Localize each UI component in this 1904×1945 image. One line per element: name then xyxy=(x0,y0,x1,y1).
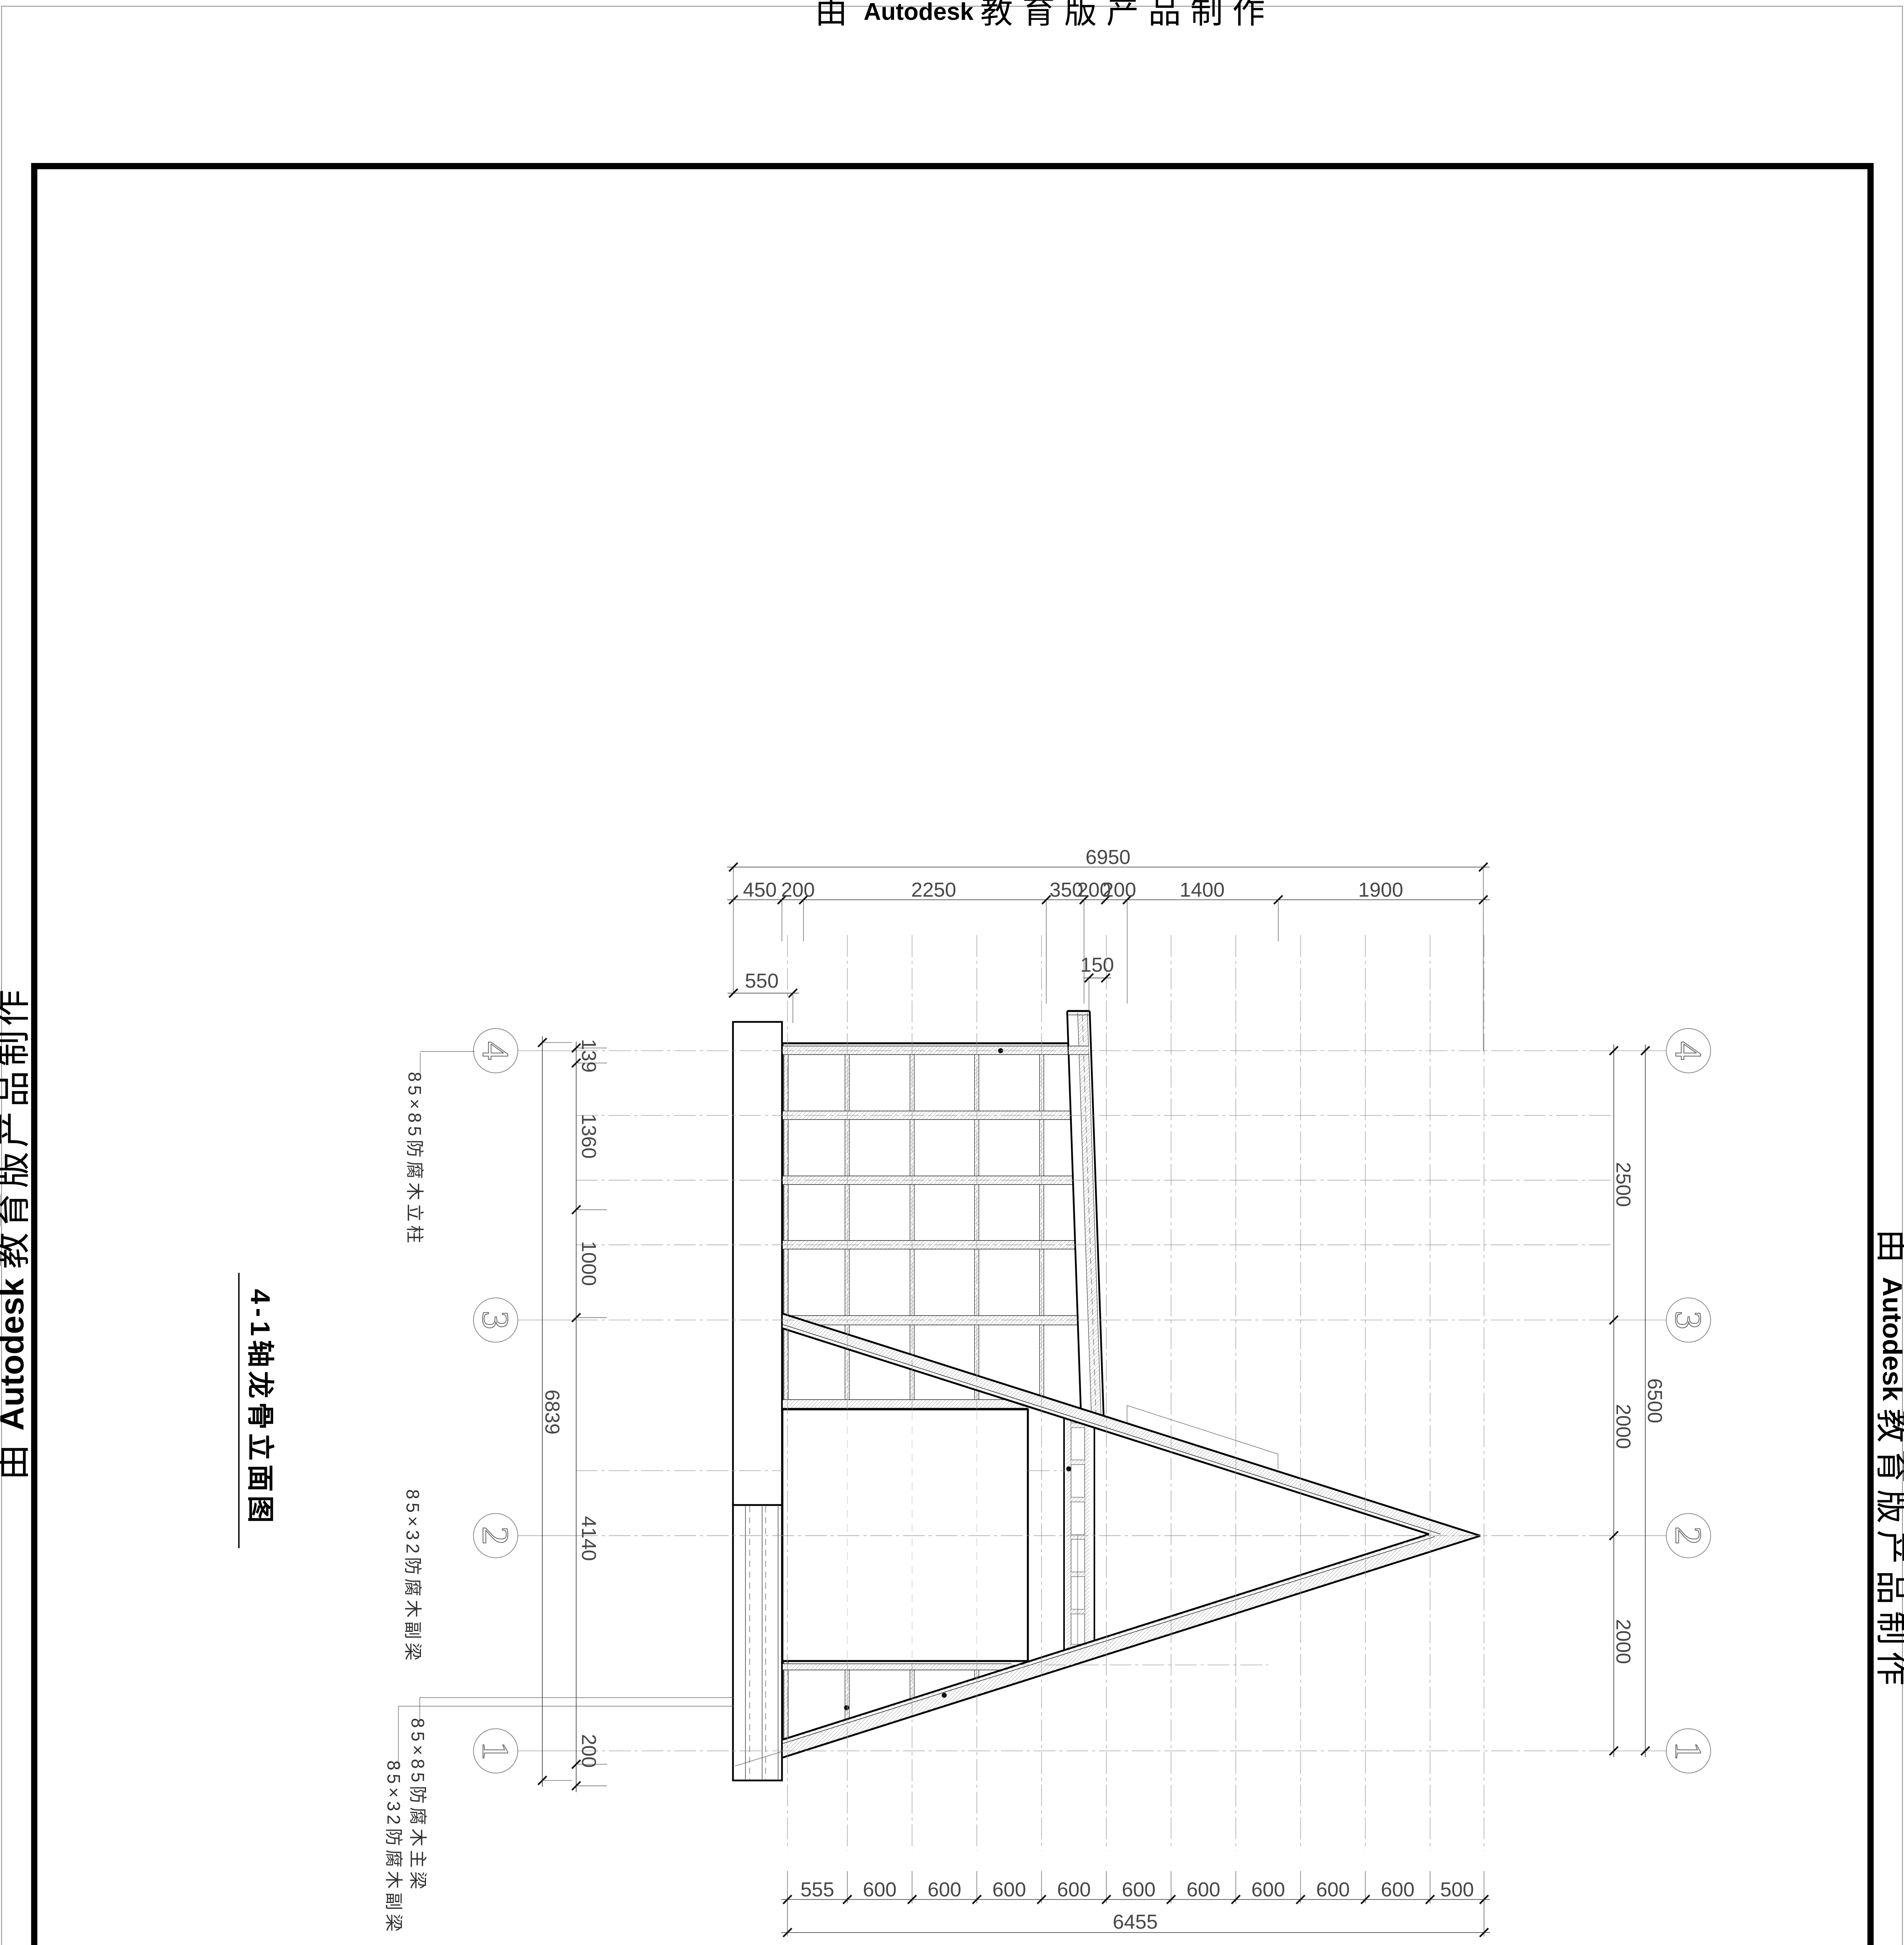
svg-text:6455: 6455 xyxy=(1113,1911,1158,1933)
svg-text:150: 150 xyxy=(1080,954,1114,976)
svg-text:550: 550 xyxy=(745,970,779,992)
svg-text:1400: 1400 xyxy=(1180,879,1225,901)
svg-text:6950: 6950 xyxy=(1085,846,1131,869)
svg-text:450: 450 xyxy=(743,879,777,901)
svg-text:6839: 6839 xyxy=(541,1390,563,1435)
svg-text:600: 600 xyxy=(1122,1878,1156,1901)
svg-text:85×32防腐木副梁: 85×32防腐木副梁 xyxy=(403,1489,423,1664)
svg-text:200: 200 xyxy=(781,879,815,901)
svg-text:由 Autodesk 教育版产品制作: 由 Autodesk 教育版产品制作 xyxy=(0,986,33,1481)
svg-text:2000: 2000 xyxy=(1612,1404,1634,1449)
svg-text:2: 2 xyxy=(1668,1526,1709,1545)
svg-text:2500: 2500 xyxy=(1612,1162,1634,1207)
svg-text:1: 1 xyxy=(475,1742,517,1760)
svg-text:3: 3 xyxy=(1668,1311,1709,1329)
svg-text:由 Autodesk 教育版产品制作: 由 Autodesk 教育版产品制作 xyxy=(1873,1229,1904,1692)
svg-text:3: 3 xyxy=(475,1311,517,1329)
svg-text:4140: 4140 xyxy=(577,1516,600,1561)
svg-text:555: 555 xyxy=(801,1878,835,1901)
svg-text:600: 600 xyxy=(863,1878,897,1901)
svg-text:1360: 1360 xyxy=(577,1114,600,1159)
svg-text:600: 600 xyxy=(1251,1878,1285,1901)
svg-text:600: 600 xyxy=(1381,1878,1415,1901)
svg-text:4: 4 xyxy=(475,1041,517,1060)
svg-text:500: 500 xyxy=(1440,1878,1474,1901)
svg-text:2000: 2000 xyxy=(1612,1619,1634,1664)
svg-text:600: 600 xyxy=(1057,1878,1091,1901)
svg-text:600: 600 xyxy=(992,1878,1026,1901)
svg-text:85×32防腐木副梁: 85×32防腐木副梁 xyxy=(384,1760,404,1935)
svg-text:600: 600 xyxy=(927,1878,961,1901)
svg-text:4: 4 xyxy=(1668,1041,1709,1060)
svg-text:85×85防腐木立柱: 85×85防腐木立柱 xyxy=(405,1072,425,1246)
svg-text:200: 200 xyxy=(577,1734,600,1768)
svg-text:139: 139 xyxy=(577,1039,600,1073)
svg-text:200: 200 xyxy=(1103,879,1136,901)
svg-text:1000: 1000 xyxy=(577,1241,600,1286)
svg-text:6500: 6500 xyxy=(1643,1378,1666,1423)
svg-text:1900: 1900 xyxy=(1358,879,1403,901)
svg-text:1: 1 xyxy=(1668,1742,1709,1760)
svg-text:600: 600 xyxy=(1187,1878,1220,1901)
svg-text:2: 2 xyxy=(475,1526,517,1545)
svg-text:85×85防腐木主梁: 85×85防腐木主梁 xyxy=(408,1718,428,1892)
svg-text:4-1轴龙骨立面图: 4-1轴龙骨立面图 xyxy=(245,1289,275,1526)
svg-text:600: 600 xyxy=(1316,1878,1350,1901)
svg-text:2250: 2250 xyxy=(911,879,956,901)
